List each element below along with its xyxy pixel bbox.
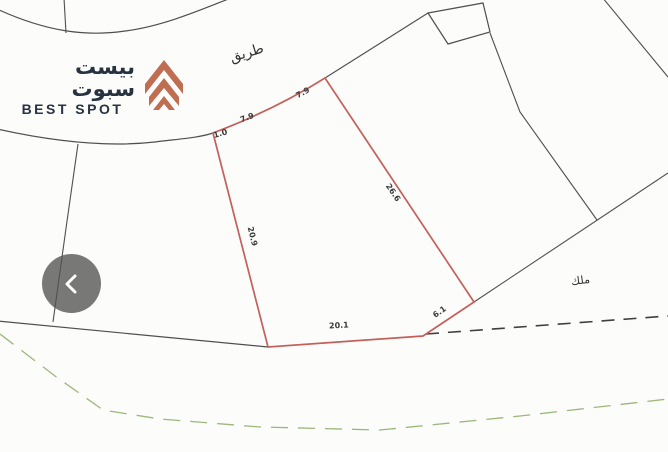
- owner-label: ملك: [570, 273, 591, 289]
- road-edge-right-line: [325, 13, 428, 78]
- dashed-boundary-line: [426, 316, 668, 334]
- bottom-boundary-line: [0, 321, 268, 347]
- dimension-label-right-side: 26.6: [384, 182, 403, 204]
- chevron-left-icon: [59, 271, 85, 297]
- boundary-from-block-line: [490, 33, 597, 220]
- far-right-boundary-line: [602, 0, 668, 77]
- dimension-label-left-side: 20.9: [246, 226, 260, 248]
- brand-name-arabic: بيست سبوت: [10, 56, 135, 100]
- dimension-label-bottom-side: 20.1: [329, 320, 350, 330]
- brand-logo-text: بيست سبوت BEST SPOT: [10, 56, 135, 117]
- road-lower-edge-line: [0, 129, 213, 144]
- building-block-outline: [428, 3, 490, 44]
- road-label: طريق: [228, 40, 266, 65]
- brand-logo: بيست سبوت BEST SPOT: [10, 55, 185, 117]
- brand-name-latin: BEST SPOT: [22, 102, 124, 117]
- previous-image-button[interactable]: [42, 254, 101, 313]
- dimension-label-bottom-right-side: 6.1: [431, 304, 448, 320]
- road-tick-line: [64, 0, 66, 33]
- road-upper-edge-line: [0, 0, 236, 33]
- brand-chevron-icon: [143, 58, 185, 114]
- land-survey-screenshot: طريق ملك 1.0 7.9 7.9 20.9 26.6 20.1 6.1 …: [0, 0, 668, 452]
- dimension-label-top-left: 7.9: [239, 111, 256, 125]
- green-contour-line: [0, 334, 668, 430]
- dimension-label-top-corner: 1.0: [212, 127, 229, 140]
